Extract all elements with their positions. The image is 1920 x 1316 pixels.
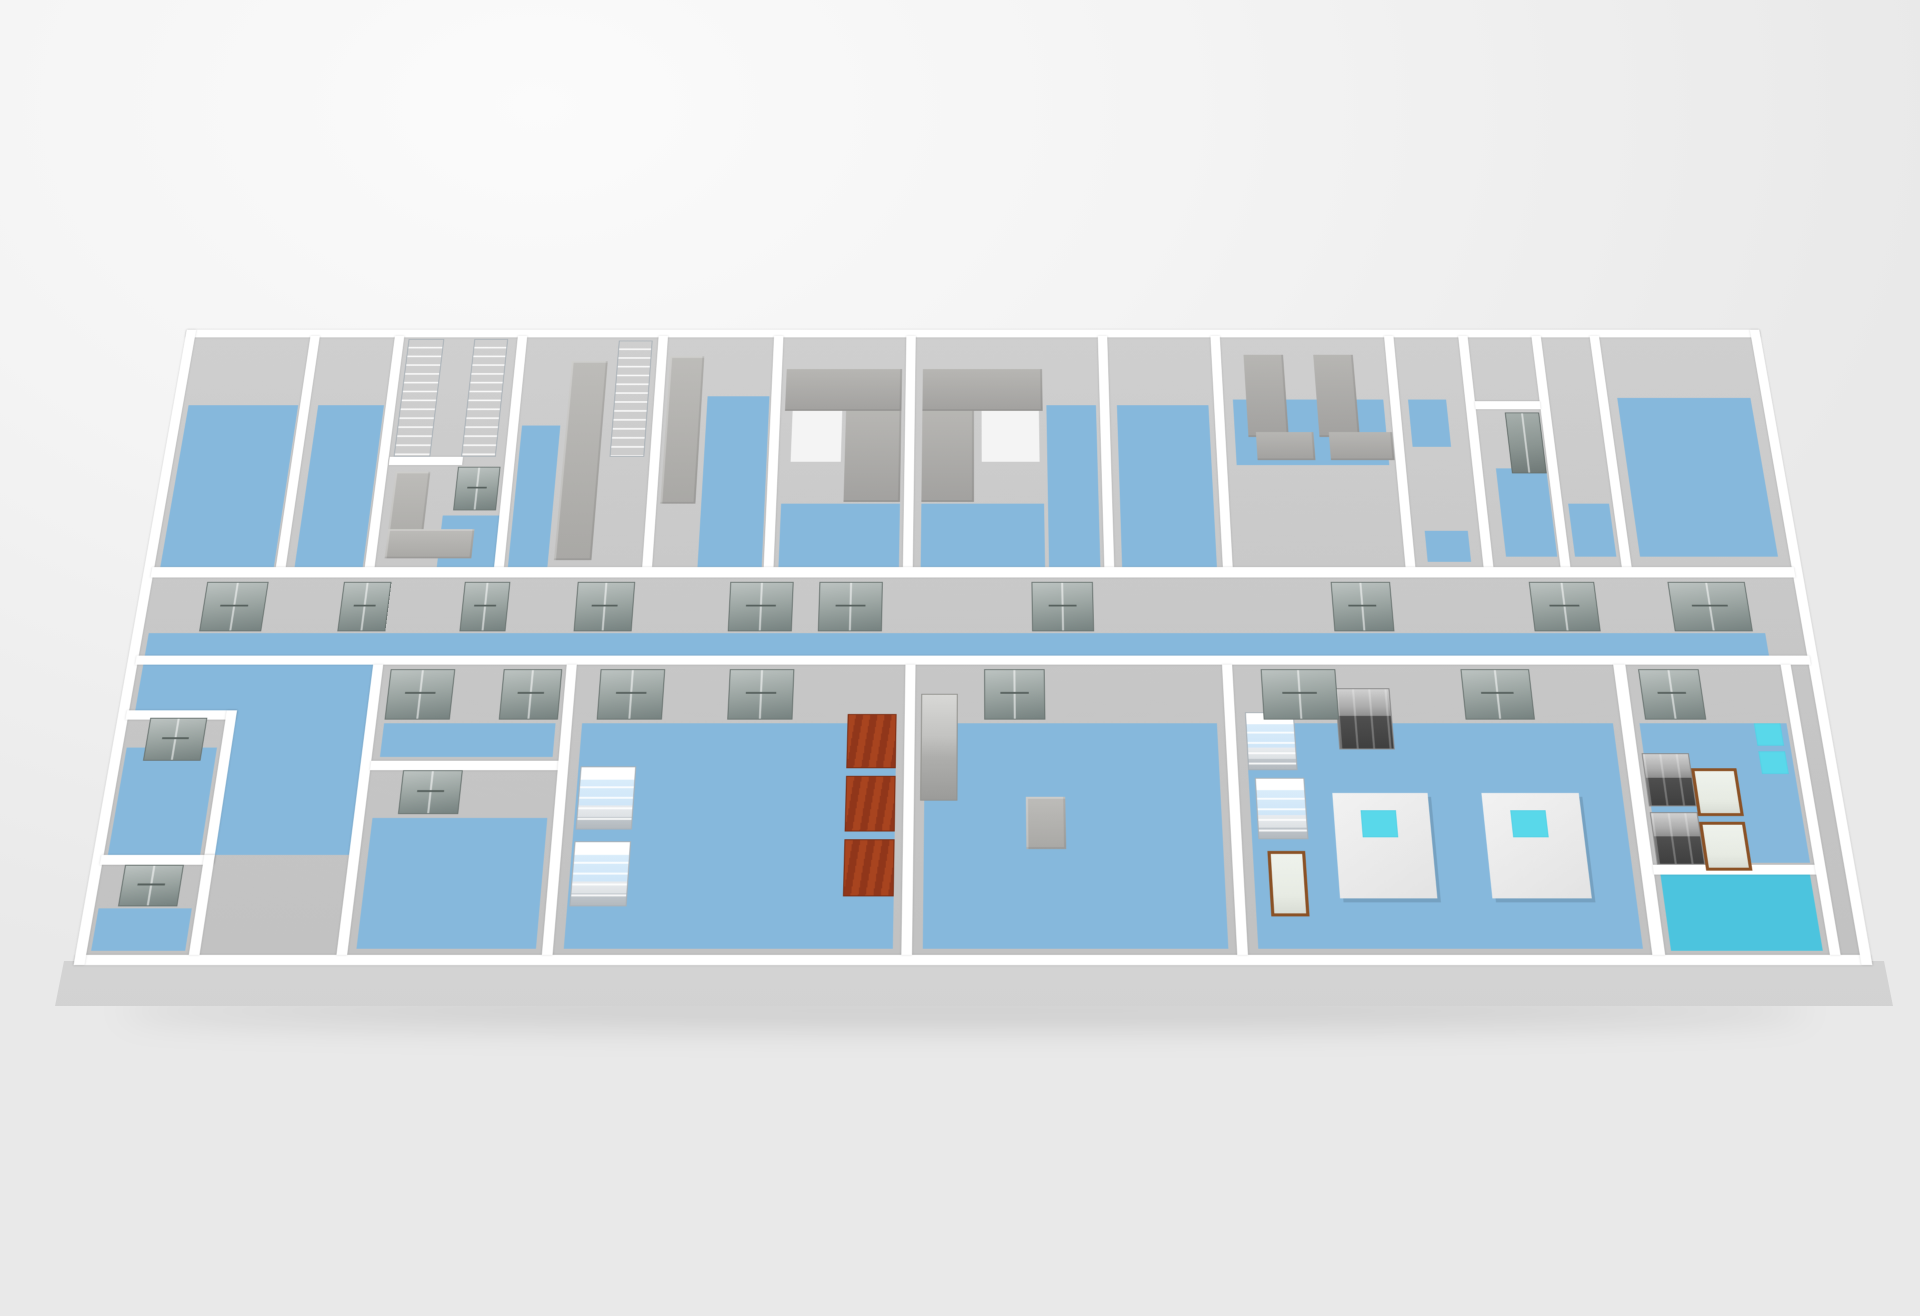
room-j-rug — [1408, 400, 1451, 447]
room-b4-table-2-cyan-top — [1510, 810, 1548, 837]
room-b2-fridge-1 — [576, 766, 637, 829]
corridor-door-2 — [337, 582, 391, 631]
wall-small-room-mid — [100, 855, 215, 865]
outer-wall-top — [185, 330, 1760, 338]
room-f-bench-block — [785, 369, 902, 411]
room-b5-steel-drawers-2 — [1650, 812, 1706, 865]
room-b4-table-2 — [1481, 793, 1591, 898]
room-b1-door-1 — [385, 669, 456, 719]
corridor-door-8 — [1331, 582, 1395, 631]
corridor-door-9 — [1529, 582, 1601, 631]
corridor-door-5 — [728, 582, 794, 631]
room-b5-teal-floor — [1660, 875, 1822, 951]
room-b2-door-1 — [597, 669, 666, 719]
room-g-floor — [921, 504, 1045, 567]
corridor-door-3 — [459, 582, 510, 631]
floor-plan-3d-render — [0, 0, 1920, 1316]
room-i-bench-2-foot — [1329, 432, 1395, 460]
room-b2-door-2 — [727, 669, 794, 719]
room-b2-red-shelf-1 — [846, 714, 896, 768]
room-b1s-floor — [356, 818, 547, 949]
room-b4-steel-counter — [1335, 688, 1395, 749]
room-b1-door-2 — [499, 669, 563, 719]
room-f-bench-side — [844, 411, 902, 502]
corridor-door-7 — [1031, 582, 1094, 631]
wall-room-k-split — [1475, 401, 1541, 409]
room-i-bench-2 — [1313, 355, 1360, 437]
wall-room-c-alcove — [389, 457, 463, 465]
room-j-rug-south — [1425, 531, 1471, 562]
corridor-door-6 — [818, 582, 883, 631]
room-b4-table-1 — [1332, 793, 1437, 898]
outer-wall-bottom — [74, 955, 1873, 965]
room-g2-floor — [1046, 405, 1100, 567]
room-l-floor — [1617, 398, 1778, 557]
small-room-2-door — [118, 865, 184, 907]
room-b3-floor — [923, 723, 1229, 948]
room-b4-fridge-1 — [1245, 712, 1298, 770]
room-b5-wall-hatch-2 — [1758, 751, 1788, 774]
building-floor-plan — [74, 330, 1873, 965]
corridor-door-10 — [1667, 582, 1752, 631]
room-f-inner-patch — [791, 411, 843, 462]
lobby-floor-south — [215, 710, 367, 855]
room-b3-table — [1026, 797, 1066, 849]
corridor-floor — [145, 633, 1769, 655]
room-g-bench-block — [922, 369, 1042, 411]
room-b5-wall-hatch-1 — [1754, 723, 1784, 745]
room-b4-fridge-2 — [1255, 778, 1309, 840]
room-h-floor — [1117, 405, 1217, 567]
room-i-bench-1-foot — [1256, 432, 1316, 460]
room-b3-cabinet — [920, 694, 958, 801]
small-room-1-door — [143, 718, 207, 761]
corridor-door-4 — [574, 582, 636, 631]
strip-room-rug — [1568, 504, 1616, 557]
room-b5-steel-drawers-1 — [1642, 753, 1697, 806]
room-c-counter-horizontal — [385, 529, 475, 558]
wall-room-b1-split — [370, 761, 558, 770]
room-f-floor — [778, 504, 899, 567]
small-room-1-floor — [108, 748, 217, 855]
room-b4-door-1 — [1261, 669, 1340, 719]
small-room-2-floor — [91, 908, 192, 950]
room-c-inner-door — [453, 467, 500, 511]
room-e-floor — [697, 396, 769, 567]
corridor-door-1 — [199, 582, 269, 631]
room-g-bench-side — [921, 411, 974, 502]
wall-corridor-north — [151, 567, 1796, 577]
room-b5-door — [1638, 669, 1706, 719]
wall-corridor-south — [135, 656, 1811, 665]
room-b2-red-shelf-2 — [845, 776, 896, 832]
room-b4-wood-case — [1267, 851, 1309, 916]
room-b5-wood-case-2 — [1699, 822, 1753, 871]
room-b1-inner-door — [398, 770, 463, 814]
room-b2-fridge-2 — [569, 841, 631, 906]
lobby-floor-north — [135, 665, 373, 711]
room-b5-wood-case-1 — [1691, 768, 1744, 816]
room-g-inner-patch — [982, 411, 1040, 462]
room-i-bench-1 — [1243, 355, 1288, 437]
room-b3-door — [984, 669, 1045, 719]
room-b1-floor — [380, 723, 556, 757]
room-b4-table-1-cyan-top — [1361, 810, 1399, 837]
room-b2-red-shelf-3 — [843, 839, 895, 896]
room-b4-door-2 — [1460, 669, 1535, 719]
